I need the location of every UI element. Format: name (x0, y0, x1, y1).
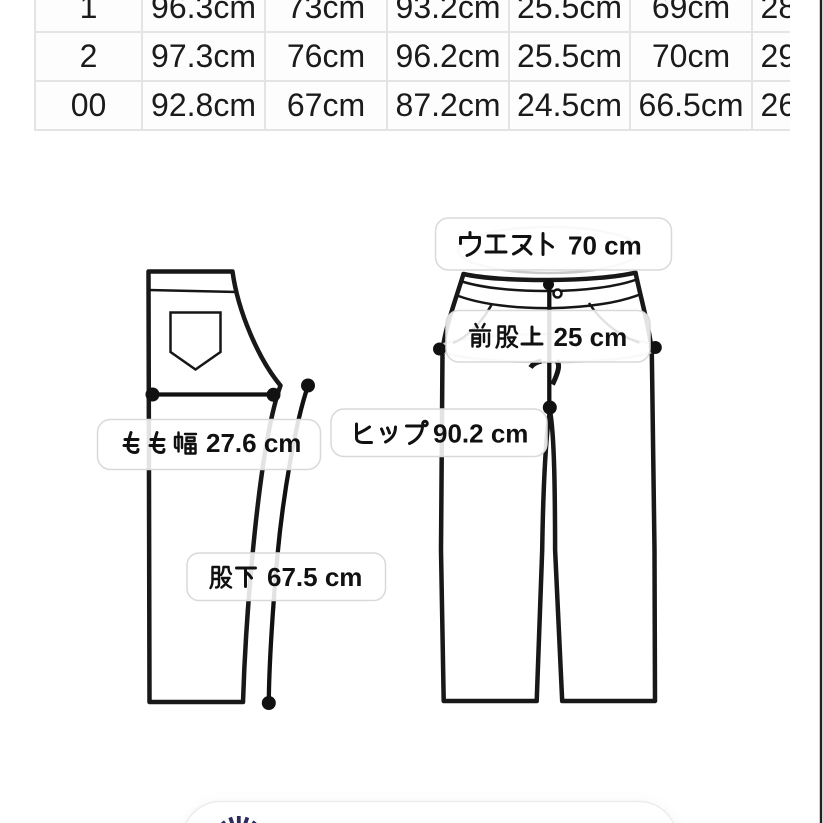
svg-text:90.2 cm: 90.2 cm (433, 419, 528, 449)
svg-text:67.5 cm: 67.5 cm (267, 562, 362, 592)
svg-text:70 cm: 70 cm (568, 231, 642, 261)
svg-text:25 cm: 25 cm (554, 322, 628, 352)
svg-text:27.6 cm: 27.6 cm (206, 428, 301, 458)
